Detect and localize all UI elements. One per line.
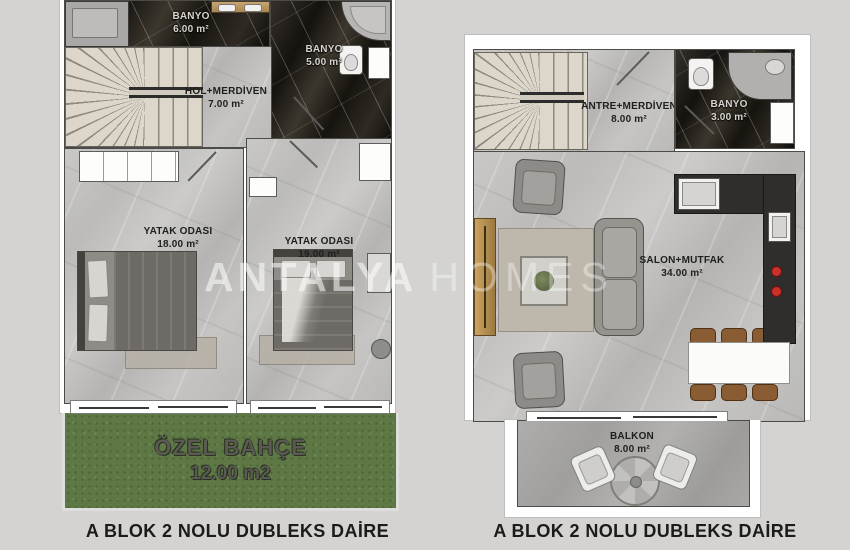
- stair-handrail: [520, 92, 584, 103]
- room-name: YATAK ODASI: [285, 235, 354, 248]
- room-area: 12.00 m2: [190, 463, 270, 485]
- left-plan-caption: A BLOK 2 NOLU DUBLEKS DAİRE: [60, 521, 415, 542]
- room-hall-stairs: HOL+MERDİVEN 7.00 m²: [64, 46, 272, 148]
- stair-handrail: [129, 87, 203, 98]
- room-bathroom-upper: BANYO 6.00 m²: [64, 0, 270, 48]
- upper-floor-plan: BANYO 6.00 m² BANYO 5.00 m² HOL+MERDİVEN: [60, 0, 395, 413]
- private-garden: ÖZEL BAHÇE 12.00 m2: [62, 413, 399, 511]
- bed-pillow: [316, 260, 346, 278]
- toilet: [688, 58, 714, 90]
- round-stool: [371, 339, 391, 359]
- balcony: BALKON 8.00 m²: [505, 420, 760, 517]
- room-area: 34.00 m²: [661, 267, 703, 280]
- bed-pillow: [281, 260, 311, 278]
- room-area: 3.00 m²: [711, 111, 747, 124]
- bathroom-vanity: [211, 1, 270, 13]
- wardrobe: [359, 143, 391, 181]
- entry-door-swing-line: [616, 51, 649, 85]
- room-bathroom-small: BANYO 5.00 m²: [270, 0, 392, 142]
- sink-counter: [728, 52, 792, 100]
- room-bedroom-1: YATAK ODASI 18.00 m²: [64, 148, 244, 404]
- door-swing-line: [293, 96, 324, 130]
- kitchen-counter-side: [763, 174, 796, 344]
- double-bed: [273, 249, 353, 351]
- room-area: 8.00 m²: [611, 113, 647, 126]
- room-name: YATAK ODASI: [144, 225, 213, 238]
- room-label: BANYO 6.00 m²: [149, 10, 233, 36]
- room-name: BANYO: [710, 98, 747, 111]
- door-swing-line: [684, 105, 714, 134]
- room-name: ANTRE+MERDİVEN: [581, 100, 675, 113]
- armchair: [512, 158, 566, 215]
- bed-headboard: [78, 252, 85, 350]
- bed-throw: [282, 268, 332, 342]
- room-label: ÖZEL BAHÇE 12.00 m2: [65, 435, 396, 485]
- toilet: [339, 45, 363, 75]
- door-swing-line: [289, 140, 318, 168]
- bathroom-cabinet: [368, 47, 390, 79]
- lower-floor-plan: ANTRE+MERDİVEN 8.00 m² BANYO 3.00 m²: [465, 35, 810, 420]
- window-sliding-door: [250, 400, 390, 414]
- sofa: [594, 218, 644, 336]
- room-label: YATAK ODASI 18.00 m²: [117, 225, 239, 251]
- bathroom-cabinet: [770, 102, 794, 144]
- double-bed: [77, 251, 197, 351]
- room-name: BANYO: [305, 43, 342, 56]
- room-area: 18.00 m²: [157, 238, 199, 251]
- room-name: ÖZEL BAHÇE: [154, 435, 307, 461]
- window-sliding-door: [70, 400, 237, 414]
- room-living-kitchen: SALON+MUTFAK 34.00 m²: [473, 151, 805, 422]
- bed-pillow: [87, 304, 108, 343]
- door-swing-line: [187, 151, 216, 181]
- shower-cabin: [65, 1, 129, 47]
- kitchen-sink: [678, 178, 720, 210]
- room-entry-stairs: ANTRE+MERDİVEN 8.00 m²: [473, 49, 675, 153]
- dining-chair: [721, 384, 747, 401]
- room-area: 7.00 m²: [208, 98, 244, 111]
- dining-table: [688, 342, 790, 384]
- room-name: BANYO: [172, 10, 209, 23]
- bed-headboard: [274, 250, 352, 257]
- right-plan-caption: A BLOK 2 NOLU DUBLEKS DAİRE: [470, 521, 820, 542]
- balcony-round-table: [610, 456, 660, 506]
- bathtub: [341, 1, 391, 41]
- duplex-floor-plan-image: BANYO 6.00 m² BANYO 5.00 m² HOL+MERDİVEN: [0, 0, 850, 550]
- room-area: 5.00 m²: [306, 56, 342, 69]
- side-cabinet: [367, 253, 391, 293]
- dining-chair: [690, 384, 716, 401]
- stove-burner: [771, 266, 782, 277]
- tv-console: [474, 218, 496, 336]
- stove-burner: [771, 286, 782, 297]
- bed-blanket: [114, 252, 196, 350]
- room-bathroom: BANYO 3.00 m²: [675, 49, 795, 149]
- balcony-door-window: [526, 411, 728, 422]
- room-bedroom-2: YATAK ODASI 19.00 m²: [246, 138, 392, 404]
- oven: [768, 212, 791, 242]
- room-area: 6.00 m²: [173, 23, 209, 36]
- sofa-cushion: [602, 279, 637, 330]
- coffee-table-with-plant: [520, 256, 568, 306]
- bed-pillow: [87, 260, 109, 299]
- dresser: [249, 177, 277, 197]
- wardrobe: [79, 151, 179, 182]
- dining-chair: [752, 384, 778, 401]
- room-name: SALON+MUTFAK: [640, 254, 725, 267]
- sofa-cushion: [602, 227, 637, 278]
- armchair: [513, 351, 566, 410]
